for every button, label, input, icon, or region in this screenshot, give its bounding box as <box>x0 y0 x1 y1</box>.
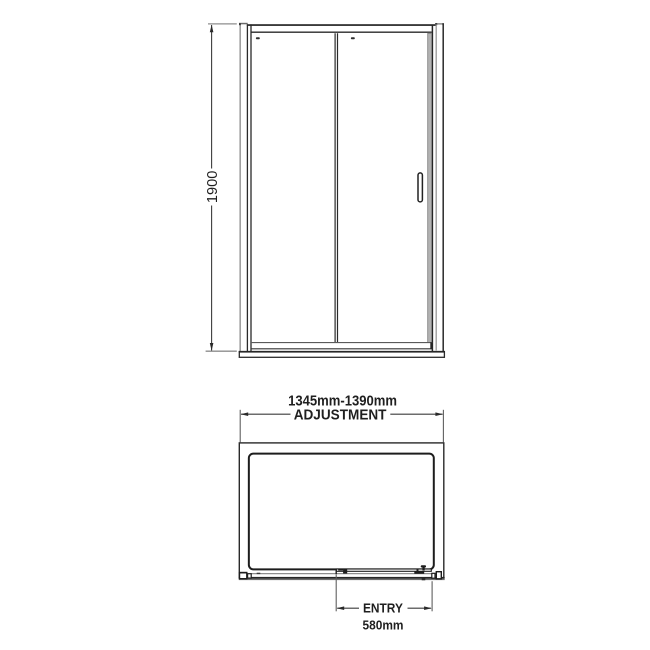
svg-text:ENTRY: ENTRY <box>363 600 403 615</box>
svg-text:ADJUSTMENT: ADJUSTMENT <box>294 407 387 424</box>
svg-text:1900: 1900 <box>204 171 221 203</box>
svg-text:580mm: 580mm <box>363 617 404 632</box>
